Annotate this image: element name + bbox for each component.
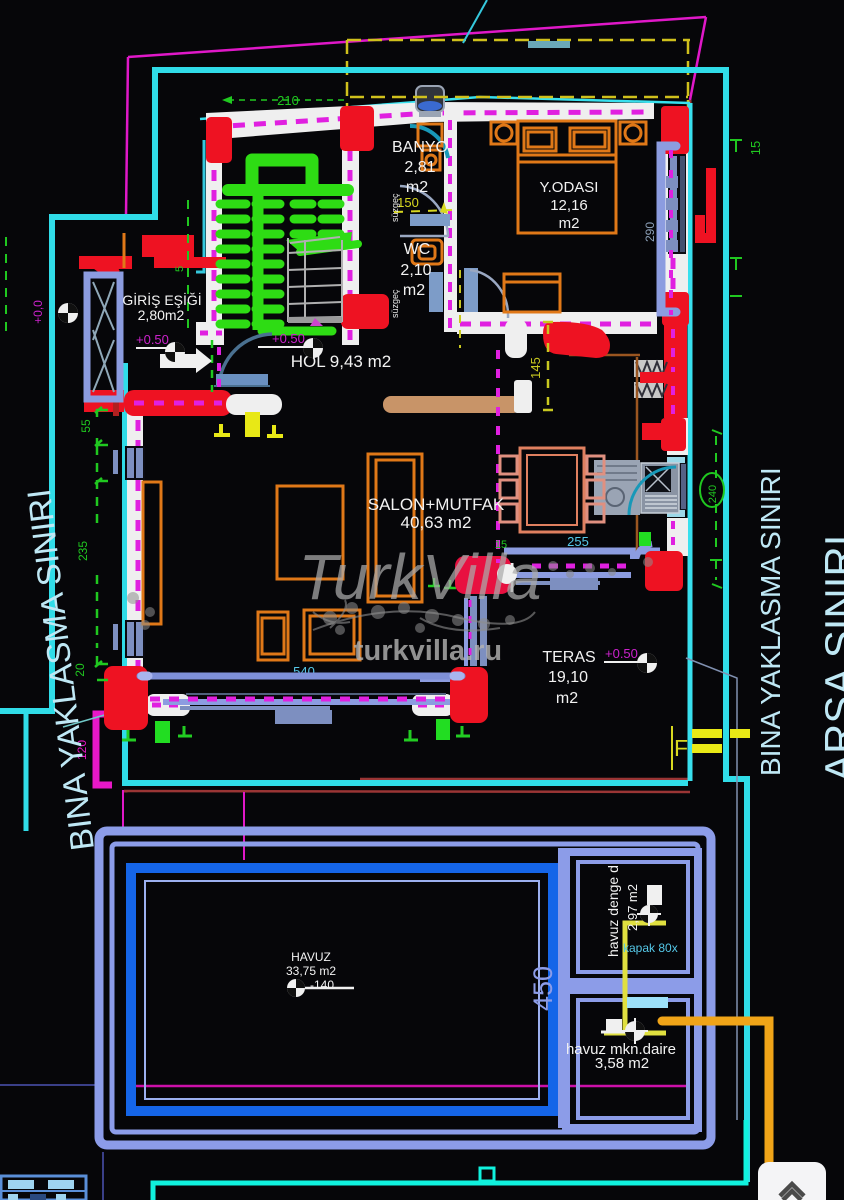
svg-text:255: 255 — [567, 534, 589, 549]
svg-text:12,16: 12,16 — [550, 197, 588, 214]
svg-text:145: 145 — [528, 357, 543, 379]
svg-text:WC: WC — [404, 241, 431, 258]
svg-text:F: F — [674, 735, 688, 761]
svg-text:TurkVilla: TurkVilla — [298, 541, 541, 613]
svg-text:5: 5 — [174, 266, 186, 272]
svg-text:33,75 m2: 33,75 m2 — [286, 964, 336, 978]
svg-text:HAVUZ: HAVUZ — [291, 950, 331, 964]
svg-text:GİRİŞ EŞİĞİ: GİRİŞ EŞİĞİ — [122, 291, 201, 308]
svg-text:kapak 80x: kapak 80x — [623, 941, 678, 955]
svg-text:m2: m2 — [556, 690, 578, 707]
svg-text:Y.ODASI: Y.ODASI — [540, 179, 599, 196]
svg-text:ARSA SINIRI: ARSA SINIRI — [816, 535, 844, 782]
svg-text:BINA YAKLASMA SINIRI: BINA YAKLASMA SINIRI — [755, 467, 786, 776]
svg-text:290: 290 — [643, 222, 657, 242]
svg-text:SALON+MUTFAK: SALON+MUTFAK — [368, 495, 505, 514]
svg-text:TERAS: TERAS — [542, 649, 595, 666]
svg-text:m2: m2 — [403, 282, 425, 299]
svg-text:2,80m2: 2,80m2 — [138, 307, 185, 323]
svg-text:240: 240 — [707, 485, 719, 503]
svg-text:+0.50: +0.50 — [272, 331, 305, 346]
svg-text:havuz denge d: havuz denge d — [605, 865, 621, 957]
svg-text:+0,0: +0,0 — [31, 300, 45, 324]
svg-text:m2: m2 — [559, 215, 580, 232]
svg-text:2,10: 2,10 — [400, 262, 431, 279]
svg-text:3,58 m2: 3,58 m2 — [595, 1055, 649, 1072]
svg-text:2,81: 2,81 — [404, 159, 435, 176]
svg-text:+0.50: +0.50 — [605, 646, 638, 661]
svg-text:2,97 m2: 2,97 m2 — [625, 884, 640, 931]
svg-text:19,10: 19,10 — [548, 669, 588, 686]
svg-text:40,63 m2: 40,63 m2 — [401, 513, 472, 532]
svg-text:m2: m2 — [406, 179, 428, 196]
svg-text:+0.50: +0.50 — [136, 332, 169, 347]
svg-text:BANYO: BANYO — [392, 139, 448, 156]
svg-text:55: 55 — [79, 419, 93, 433]
svg-text:-140: -140 — [310, 978, 334, 992]
svg-text:235: 235 — [76, 541, 90, 561]
svg-text:450: 450 — [528, 966, 558, 1011]
svg-text:süzgeç: süzgeç — [390, 289, 400, 318]
svg-text:turkvilla.ru: turkvilla.ru — [354, 635, 502, 667]
svg-text:süzgeç: süzgeç — [390, 193, 400, 222]
svg-text:15: 15 — [748, 141, 763, 155]
svg-text:150: 150 — [397, 195, 419, 210]
